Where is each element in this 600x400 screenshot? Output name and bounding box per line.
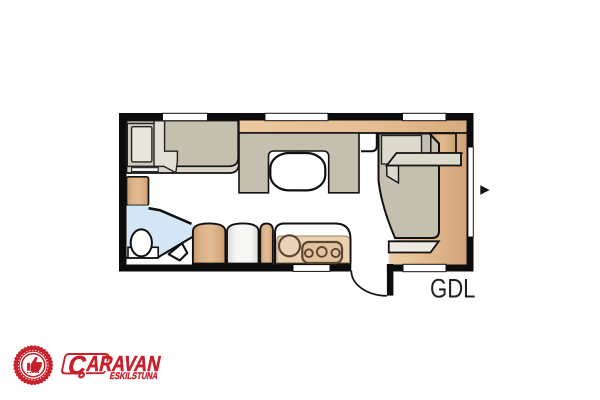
svg-text:ESKILSTUNA: ESKILSTUNA (109, 371, 159, 382)
svg-text:GDL: GDL (430, 274, 476, 304)
